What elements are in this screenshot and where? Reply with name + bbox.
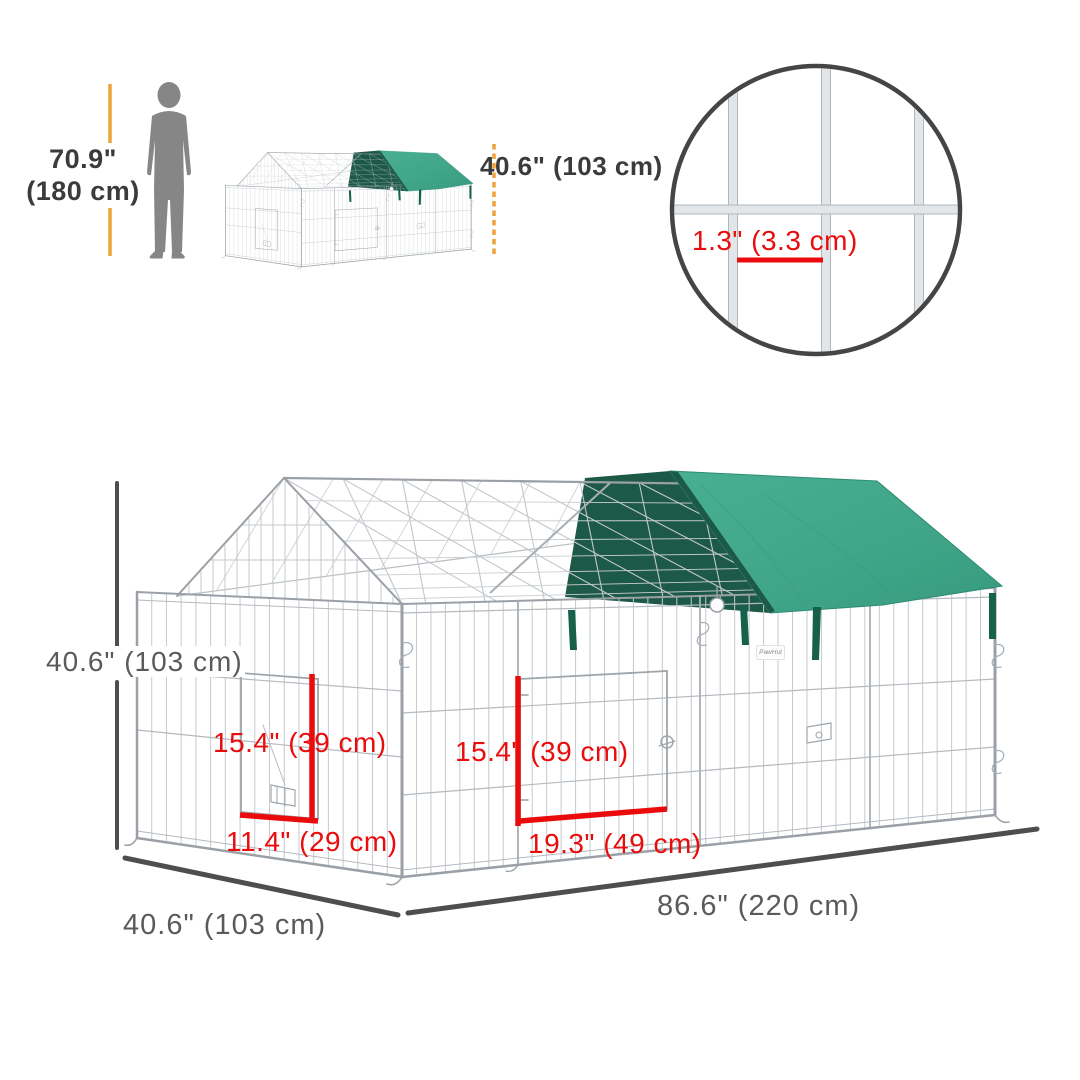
left-door-height-label: 15.4" (39 cm) bbox=[213, 729, 387, 757]
cage-height-label: 40.6" (103 cm) bbox=[44, 648, 245, 676]
left-door-width-label: 11.4" (29 cm) bbox=[226, 828, 398, 856]
mesh-gap-label: 1.3" (3.3 cm) bbox=[692, 227, 858, 255]
front-door-height-label: 15.4" (39 cm) bbox=[455, 738, 629, 766]
cover-height-label: 40.6" (103 cm) bbox=[480, 153, 663, 179]
product-dimension-diagram: 70.9" (180 cm) 40.6" (103 cm) 1.3" (3.3 … bbox=[0, 0, 1080, 1080]
length-label: 86.6" (220 cm) bbox=[657, 892, 860, 921]
main-cage-illustration bbox=[125, 471, 1009, 885]
person-height-inches: 70.9" bbox=[48, 143, 118, 175]
front-door-width-label: 19.3" (49 cm) bbox=[528, 830, 702, 858]
person-height-cm: (180 cm) bbox=[25, 175, 141, 207]
brand-logo-badge: PawHut bbox=[756, 645, 785, 660]
person-silhouette bbox=[147, 82, 191, 259]
person-height-label: 70.9" (180 cm) bbox=[20, 143, 146, 207]
mesh-detail-callout bbox=[670, 64, 964, 356]
cage-thumbnail bbox=[222, 151, 475, 269]
depth-label: 40.6" (103 cm) bbox=[123, 911, 326, 940]
